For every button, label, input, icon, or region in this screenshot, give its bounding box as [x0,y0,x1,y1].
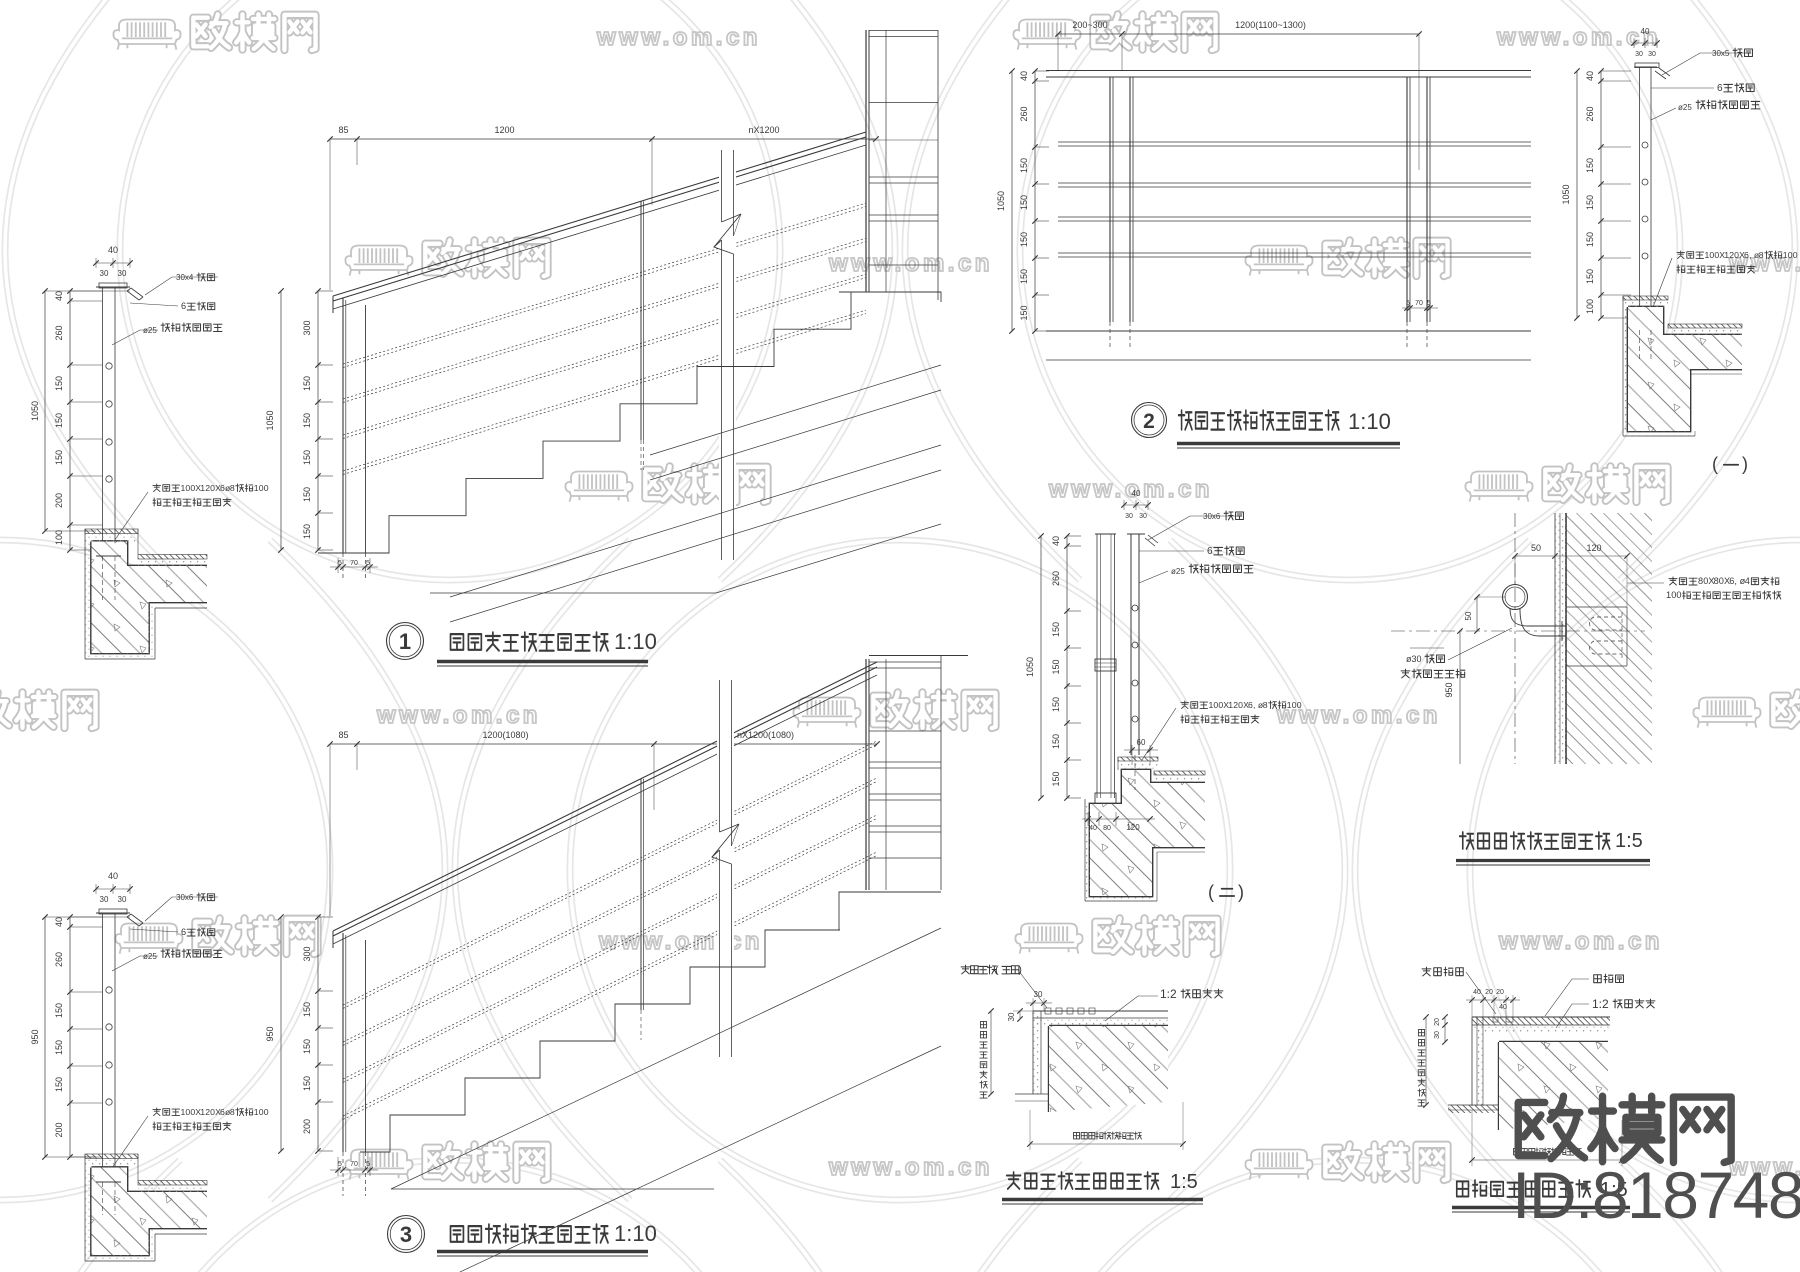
svg-text:150: 150 [54,450,64,465]
svg-text:8: 8 [230,1107,235,1117]
svg-text:ø25: ø25 [1678,103,1692,112]
svg-text:150: 150 [1585,195,1595,210]
svg-text:1050: 1050 [1561,184,1571,204]
svg-text:www.om.cn: www.om.cn [1048,476,1213,503]
svg-text:260: 260 [1019,106,1029,121]
svg-text:6: 6 [1207,546,1213,557]
svg-text:150: 150 [1585,232,1595,247]
svg-text:2: 2 [1143,410,1155,433]
svg-text:70: 70 [350,560,358,567]
svg-text:150: 150 [1019,158,1029,173]
svg-text:85: 85 [338,125,348,135]
svg-text:150: 150 [302,1002,312,1017]
svg-text:40: 40 [1499,1004,1507,1011]
svg-text:(: ( [1712,454,1718,474]
svg-text:200: 200 [302,1119,312,1134]
svg-text:150: 150 [302,524,312,539]
svg-text:150: 150 [302,1076,312,1091]
svg-text:1:2: 1:2 [1592,997,1609,1011]
svg-text:20: 20 [1434,1018,1441,1026]
svg-text:5: 5 [366,1161,370,1168]
svg-text:150: 150 [1051,734,1061,749]
svg-text:6: 6 [1717,83,1723,94]
svg-text:0: 0 [1297,700,1302,710]
svg-text:50: 50 [1464,611,1473,620]
svg-text:ø30: ø30 [1406,654,1422,664]
svg-text:40: 40 [1132,489,1141,498]
svg-text:3: 3 [400,1222,412,1247]
svg-text:30: 30 [1648,51,1656,58]
svg-text:1050: 1050 [996,191,1006,211]
svg-text:70: 70 [350,1161,358,1168]
svg-text:30: 30 [118,269,127,278]
svg-text:150: 150 [1051,622,1061,637]
svg-text:5: 5 [338,560,342,567]
svg-text:85: 85 [338,730,348,740]
svg-text:50: 50 [1531,543,1541,553]
svg-text:30: 30 [1125,513,1133,520]
svg-text:150: 150 [1051,697,1061,712]
svg-text:ID:818748: ID:818748 [1512,1158,1800,1232]
svg-text:,: , [1749,250,1751,260]
svg-text:150: 150 [1019,305,1029,320]
svg-text:8: 8 [230,483,235,493]
svg-text:80: 80 [1103,825,1111,832]
svg-text:): ) [1238,882,1244,902]
svg-text:40: 40 [54,917,64,927]
svg-text:30x6: 30x6 [1203,512,1221,521]
svg-text:8: 8 [1263,700,1268,710]
svg-text:40: 40 [1051,536,1061,546]
svg-text:ø25: ø25 [143,326,157,335]
svg-text:30: 30 [100,895,109,904]
svg-text:30: 30 [1635,51,1643,58]
svg-text:0: 0 [264,1107,269,1117]
svg-text:150: 150 [1019,269,1029,284]
svg-text:70: 70 [1415,300,1423,307]
svg-text:1:2: 1:2 [1160,987,1177,1001]
svg-text:260: 260 [54,325,64,340]
svg-text:40: 40 [1473,989,1481,996]
svg-text:30: 30 [1139,513,1147,520]
svg-text:1:5: 1:5 [1615,830,1643,852]
svg-text:150: 150 [302,376,312,391]
svg-text:4: 4 [1745,576,1750,586]
svg-text:30x6: 30x6 [176,893,194,902]
svg-text:300: 300 [302,320,312,335]
svg-text:0: 0 [1793,250,1798,260]
svg-text:1200: 1200 [494,125,514,135]
svg-text:5: 5 [1406,300,1410,307]
svg-text:www.om.cn: www.om.cn [828,250,993,277]
svg-text:www.om.cn: www.om.cn [376,702,541,729]
svg-text:,: , [1253,700,1255,710]
svg-text:150: 150 [302,450,312,465]
svg-text:100: 100 [1585,299,1595,314]
svg-text:150: 150 [54,1077,64,1092]
svg-text:30: 30 [1007,1012,1016,1021]
svg-text:200: 200 [54,1122,64,1137]
svg-text:8: 8 [1759,250,1764,260]
svg-text:150: 150 [302,413,312,428]
svg-text:150: 150 [54,376,64,391]
svg-text:260: 260 [1051,571,1061,586]
svg-text:ø25: ø25 [1171,567,1185,576]
svg-text:30: 30 [1434,1031,1441,1039]
svg-text:260: 260 [54,952,64,967]
svg-text:ø25: ø25 [143,952,157,961]
svg-text:950: 950 [1444,682,1454,697]
svg-text:nX1200: nX1200 [748,125,779,135]
svg-text:40: 40 [1019,71,1029,81]
svg-text:): ) [1742,454,1748,474]
svg-text:www.om.cn: www.om.cn [1496,24,1661,51]
svg-text:150: 150 [1585,269,1595,284]
svg-text:www.om.cn: www.om.cn [596,24,761,51]
svg-text:40: 40 [54,291,64,301]
svg-text:150: 150 [302,1039,312,1054]
svg-text:1050: 1050 [1025,657,1035,677]
svg-text:www.om.cn: www.om.cn [598,928,763,955]
svg-text:200: 200 [54,493,64,508]
svg-text:1200(1080): 1200(1080) [482,730,528,740]
svg-text:30x4: 30x4 [176,273,194,282]
svg-text:1:10: 1:10 [614,629,657,654]
svg-text:40: 40 [108,245,118,255]
svg-text:0: 0 [1676,590,1681,600]
svg-text:1: 1 [399,629,411,654]
svg-text:5: 5 [366,560,370,567]
svg-text:150: 150 [54,1003,64,1018]
svg-text:120: 120 [1586,543,1601,553]
svg-text:120: 120 [1126,823,1140,832]
svg-text:(: ( [1208,882,1214,902]
svg-text:40: 40 [1089,825,1097,832]
svg-text:150: 150 [1019,195,1029,210]
svg-text:150: 150 [1019,232,1029,247]
svg-text:950: 950 [265,1026,275,1041]
svg-text:30: 30 [100,269,109,278]
svg-text:www.om.cn: www.om.cn [1498,928,1663,955]
svg-text:300: 300 [302,946,312,961]
svg-text:40: 40 [1641,27,1650,36]
svg-text:40: 40 [108,871,118,881]
svg-text:950: 950 [30,1029,40,1044]
svg-text:30: 30 [1034,990,1043,999]
svg-text:5: 5 [338,1161,342,1168]
svg-text:20: 20 [1496,989,1504,996]
svg-text:40: 40 [1585,71,1595,81]
svg-text:,: , [1734,576,1737,586]
svg-text:150: 150 [302,487,312,502]
svg-text:www.om.cn: www.om.cn [828,1154,993,1181]
svg-text:1:10: 1:10 [1348,409,1391,434]
svg-text:260: 260 [1585,106,1595,121]
svg-text:150: 150 [1051,771,1061,786]
svg-text:0: 0 [264,483,269,493]
svg-text:150: 150 [54,413,64,428]
svg-text:1:5: 1:5 [1170,1171,1198,1193]
svg-text:200~300: 200~300 [1072,20,1107,30]
svg-text:1:10: 1:10 [614,1221,657,1246]
svg-text:150: 150 [1585,158,1595,173]
svg-text:5: 5 [1427,300,1431,307]
svg-text:150: 150 [1051,659,1061,674]
svg-text:6: 6 [181,301,186,311]
svg-text:1050: 1050 [30,401,40,421]
svg-text:1050: 1050 [265,410,275,430]
svg-text:60: 60 [1137,738,1146,747]
svg-text:30: 30 [118,895,127,904]
svg-text:1200(1100~1300): 1200(1100~1300) [1235,20,1306,30]
svg-text:100: 100 [54,530,64,545]
svg-text:20: 20 [1485,989,1493,996]
svg-text:30x5: 30x5 [1712,49,1730,58]
svg-text:6: 6 [181,927,186,937]
svg-text:150: 150 [54,1040,64,1055]
